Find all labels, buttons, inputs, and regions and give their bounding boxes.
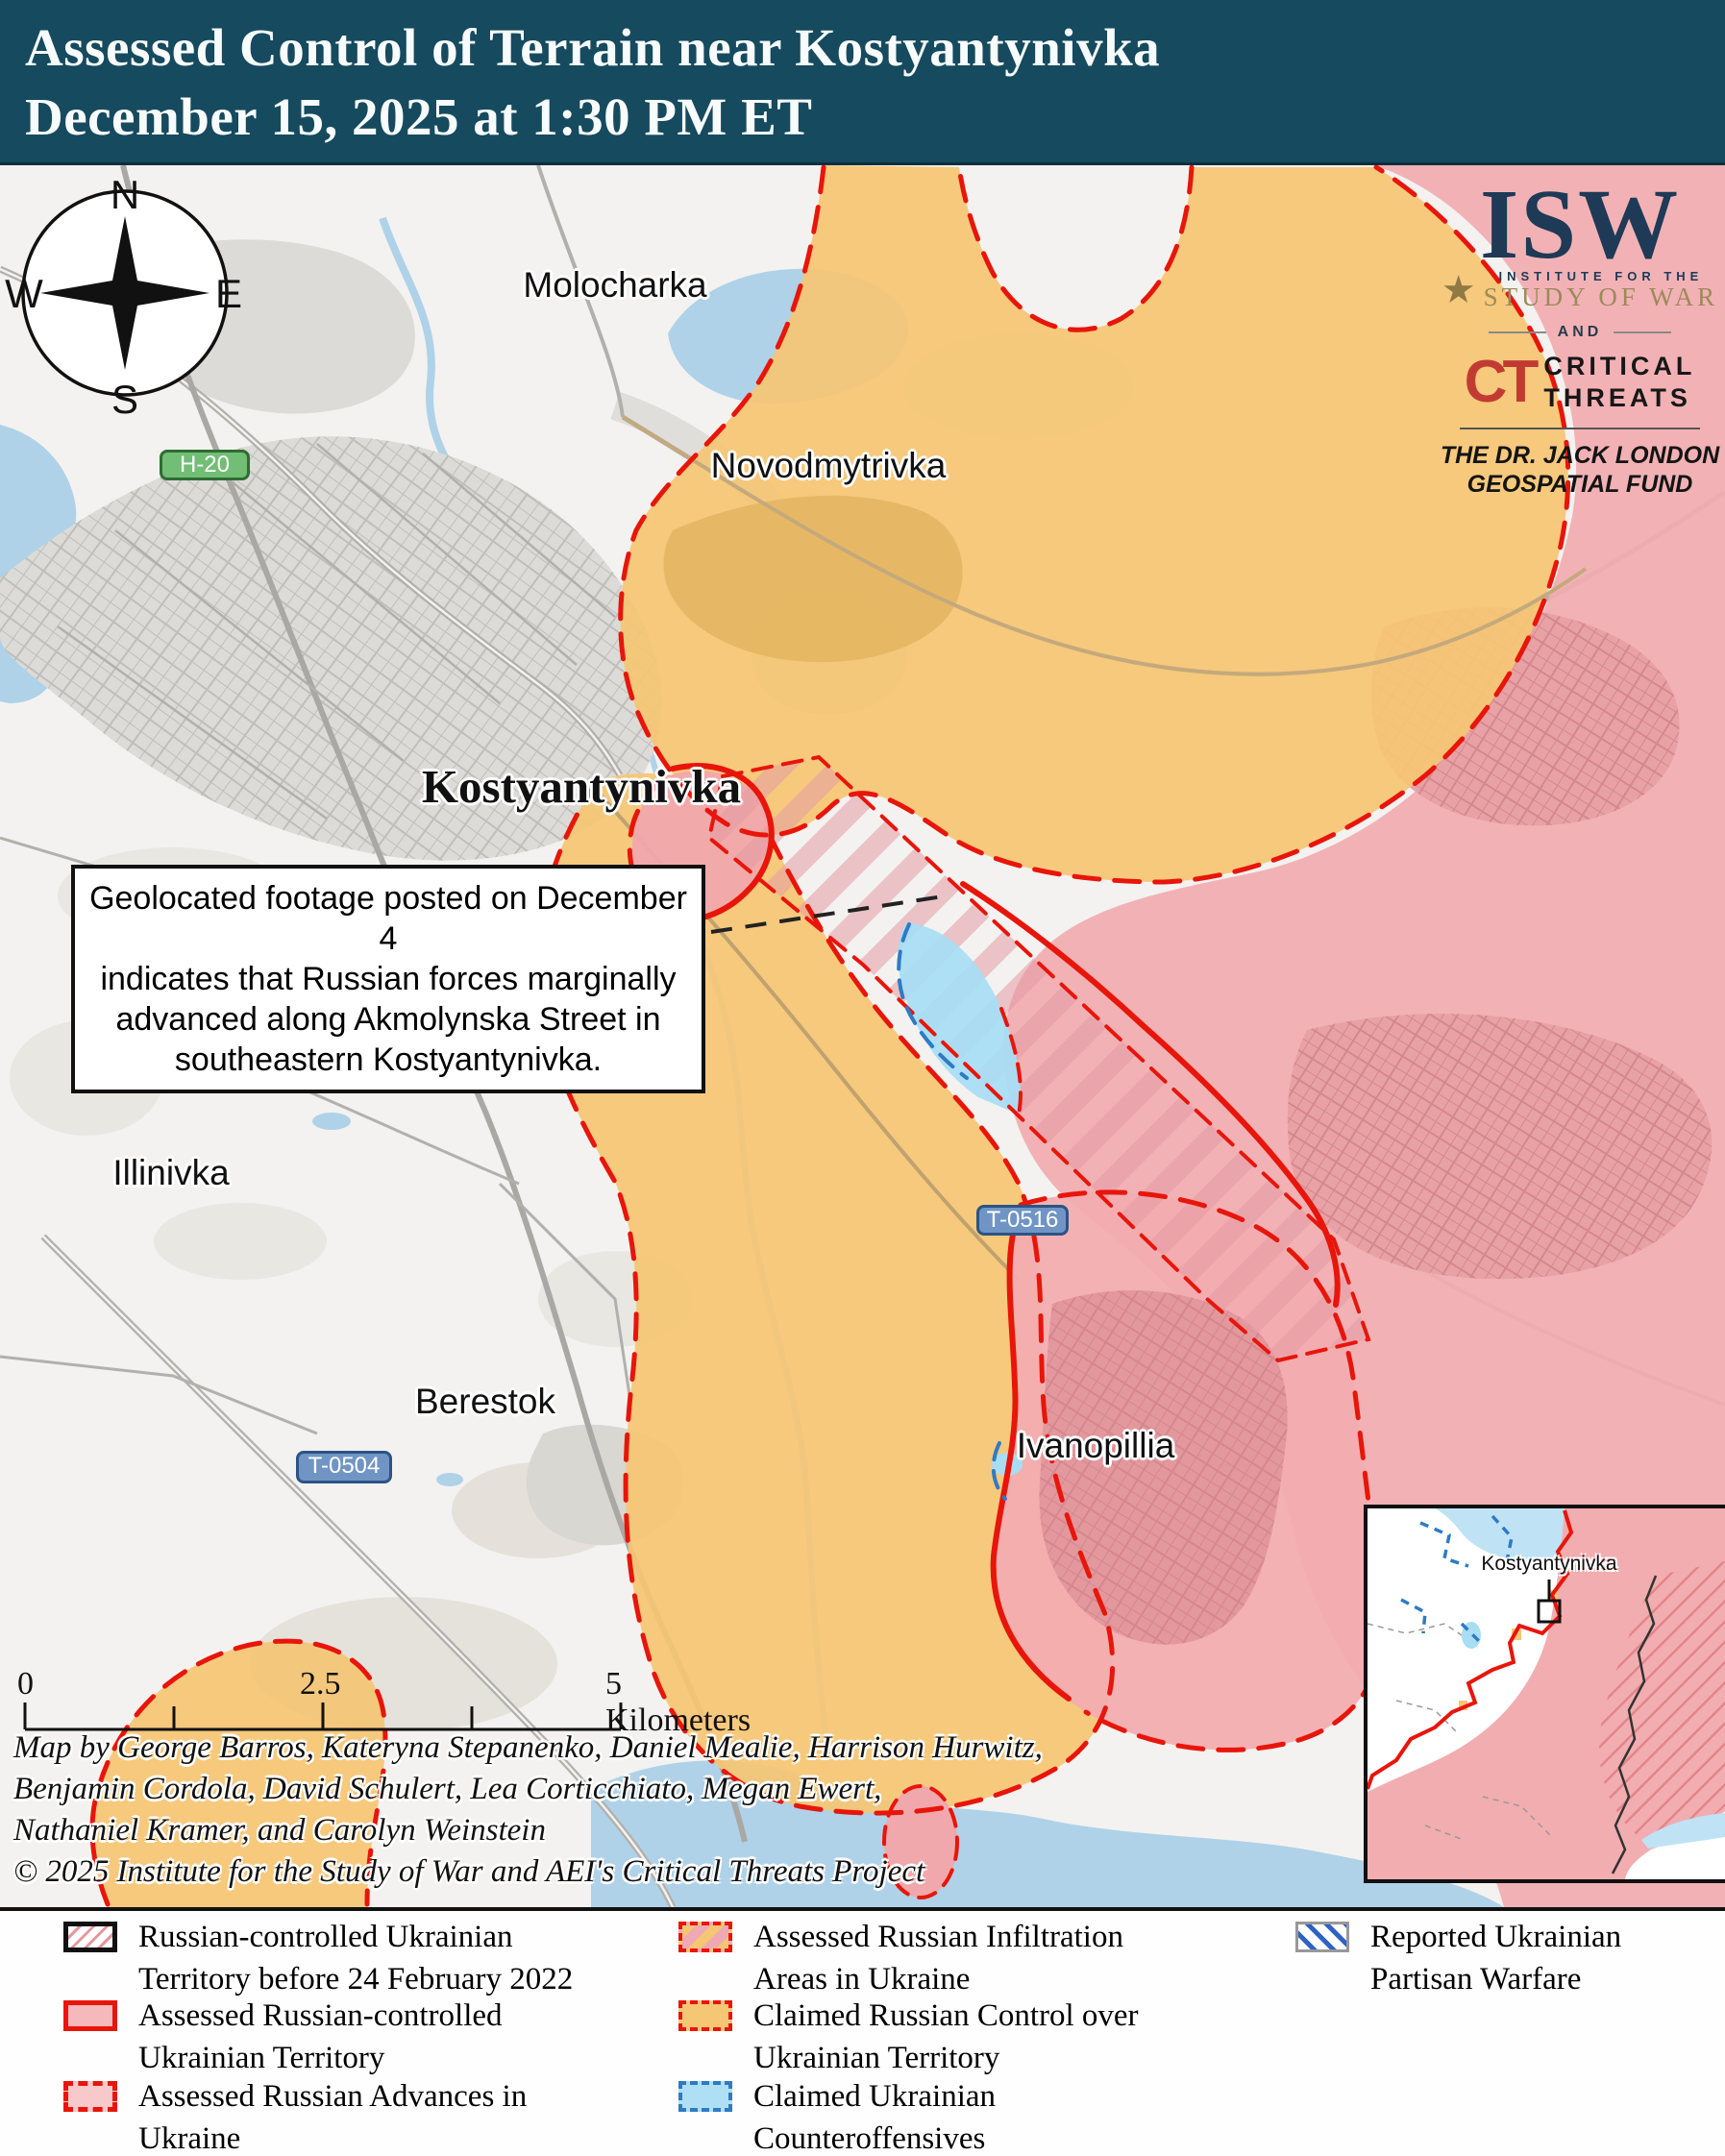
isw-map-page: Assessed Control of Terrain near Kostyan… xyxy=(0,0,1725,2156)
swatch-counteroffensives xyxy=(678,2081,732,2112)
logo-block: ISW ★ INSTITUTE FOR THE STUDY OF WAR AND… xyxy=(1438,177,1722,499)
and-divider: AND xyxy=(1438,324,1722,341)
inset-label-kostyantynivka: Kostyantynivka xyxy=(1481,1553,1616,1576)
isw-star-icon: ★ xyxy=(1442,271,1476,309)
swatch-partisan xyxy=(1295,1922,1349,1952)
swatch-assessed-control xyxy=(63,2000,117,2031)
label-berestok: Berestok xyxy=(415,1382,555,1422)
annotation-callout: Geolocated footage posted on December 4 … xyxy=(71,865,705,1093)
isw-study-of-war-text: STUDY OF WAR xyxy=(1484,283,1719,310)
swatch-claimed-control xyxy=(678,2000,732,2031)
legend-item-assessed-control: Assessed Russian-controlled Ukrainian Te… xyxy=(63,1995,503,2079)
page-title: Assessed Control of Terrain near Kostyan… xyxy=(25,13,1725,152)
legend-item-pre2022: Russian-controlled Ukrainian Territory b… xyxy=(63,1916,573,2000)
legend-item-claimed-control: Claimed Russian Control over Ukrainian T… xyxy=(678,1995,1139,2079)
isw-institute-text: INSTITUTE FOR THE xyxy=(1484,269,1719,283)
road-shield-t0504: T-0504 xyxy=(296,1451,392,1483)
map-legend: Russian-controlled Ukrainian Territory b… xyxy=(0,1907,1725,2156)
compass-east: E xyxy=(215,271,242,316)
label-kostyantynivka: Kostyantynivka xyxy=(422,759,741,814)
legend-item-counteroffensives: Claimed Ukrainian Counteroffensives xyxy=(678,2075,996,2156)
legend-item-partisan: Reported Ukrainian Partisan Warfare xyxy=(1295,1916,1621,2000)
map-credits: Map by George Barros, Kateryna Stepanenk… xyxy=(13,1727,1090,1893)
swatch-advances xyxy=(63,2081,117,2112)
isw-logo: ISW xyxy=(1438,177,1722,273)
scale-zero: 0 xyxy=(17,1666,34,1703)
compass-west: W xyxy=(5,271,43,316)
and-text: AND xyxy=(1558,324,1603,341)
compass-north: N xyxy=(111,172,139,217)
inset-locator-map: Kostyantynivka xyxy=(1364,1505,1725,1883)
scale-mid: 2.5 xyxy=(300,1666,341,1703)
compass-south: S xyxy=(111,377,138,422)
swatch-infiltration xyxy=(678,1922,732,1952)
title-bar: Assessed Control of Terrain near Kostyan… xyxy=(0,0,1725,165)
critical-threats-text: CRITICAL THREATS xyxy=(1543,351,1695,414)
critical-threats-logo: CT CRITICAL THREATS xyxy=(1438,351,1722,414)
label-illinivka: Illinivka xyxy=(112,1153,229,1193)
logo-divider xyxy=(1460,428,1700,429)
legend-item-advances: Assessed Russian Advances in Ukraine xyxy=(63,2075,527,2156)
swatch-pre2022 xyxy=(63,1922,117,1952)
label-molocharka: Molocharka xyxy=(523,265,706,306)
map-canvas: N S W E 0 2.5 5 Kilometers Molocharka No… xyxy=(0,165,1725,1907)
label-novodmytrivka: Novodmytrivka xyxy=(711,446,947,486)
geospatial-fund-text: THE DR. JACK LONDON GEOSPATIAL FUND xyxy=(1438,441,1722,499)
road-shield-t0516: T-0516 xyxy=(976,1205,1069,1236)
road-shield-h20: H-20 xyxy=(160,450,250,480)
ct-monogram-icon: CT xyxy=(1465,355,1535,409)
legend-item-infiltration: Assessed Russian Infiltration Areas in U… xyxy=(678,1916,1123,2000)
label-ivanopillia: Ivanopillia xyxy=(1017,1426,1175,1466)
